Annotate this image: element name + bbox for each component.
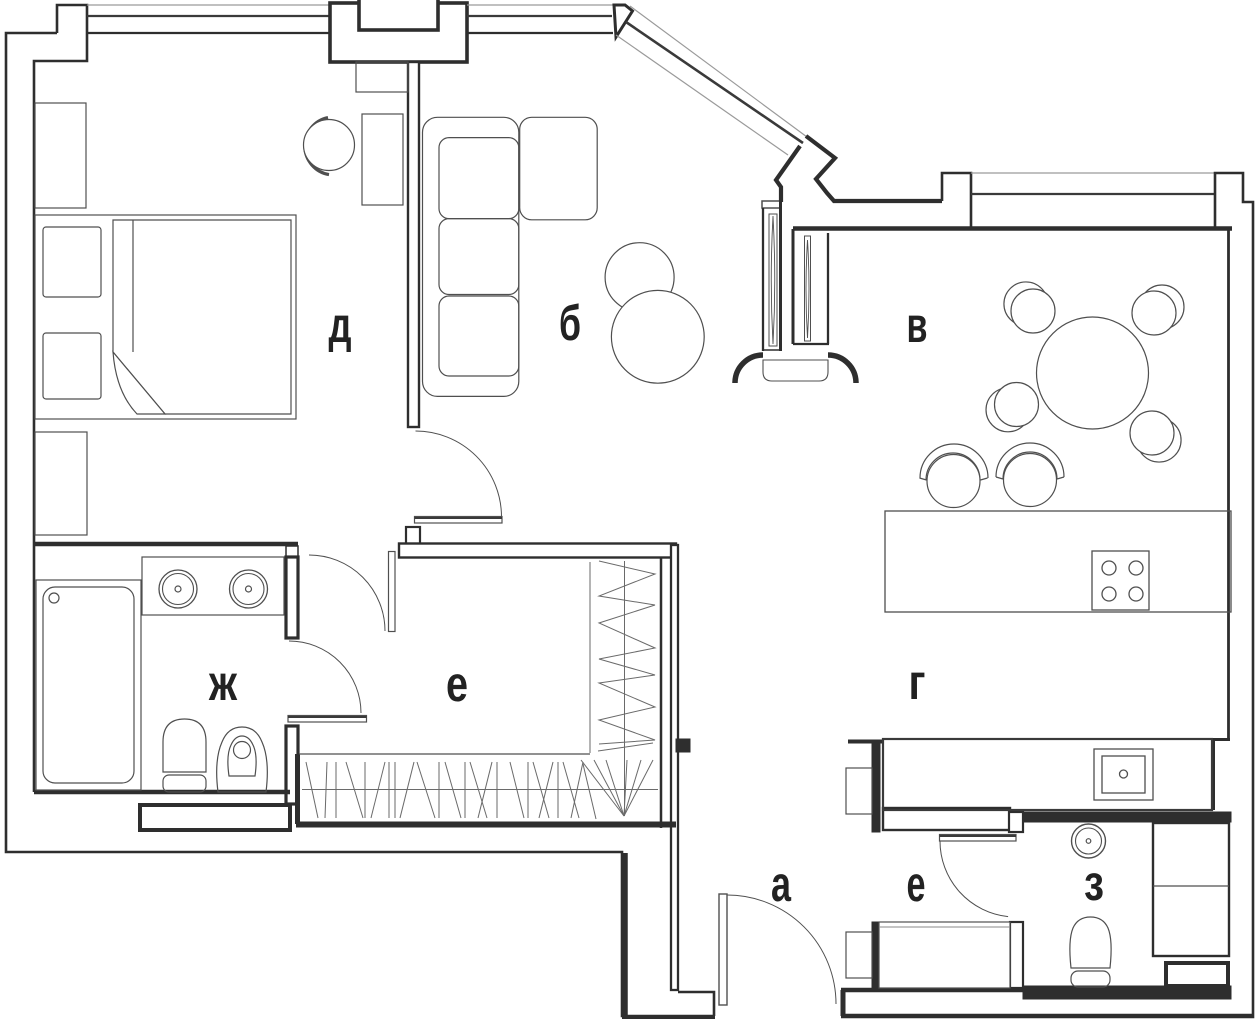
svg-text:з: з [1084, 855, 1104, 911]
svg-text:е: е [907, 856, 926, 912]
svg-text:е: е [446, 656, 468, 712]
svg-text:д: д [329, 297, 352, 353]
svg-text:б: б [559, 295, 581, 351]
svg-text:в: в [907, 297, 928, 353]
svg-text:а: а [771, 856, 792, 912]
svg-text:ж: ж [208, 655, 237, 711]
svg-text:г: г [909, 654, 926, 710]
